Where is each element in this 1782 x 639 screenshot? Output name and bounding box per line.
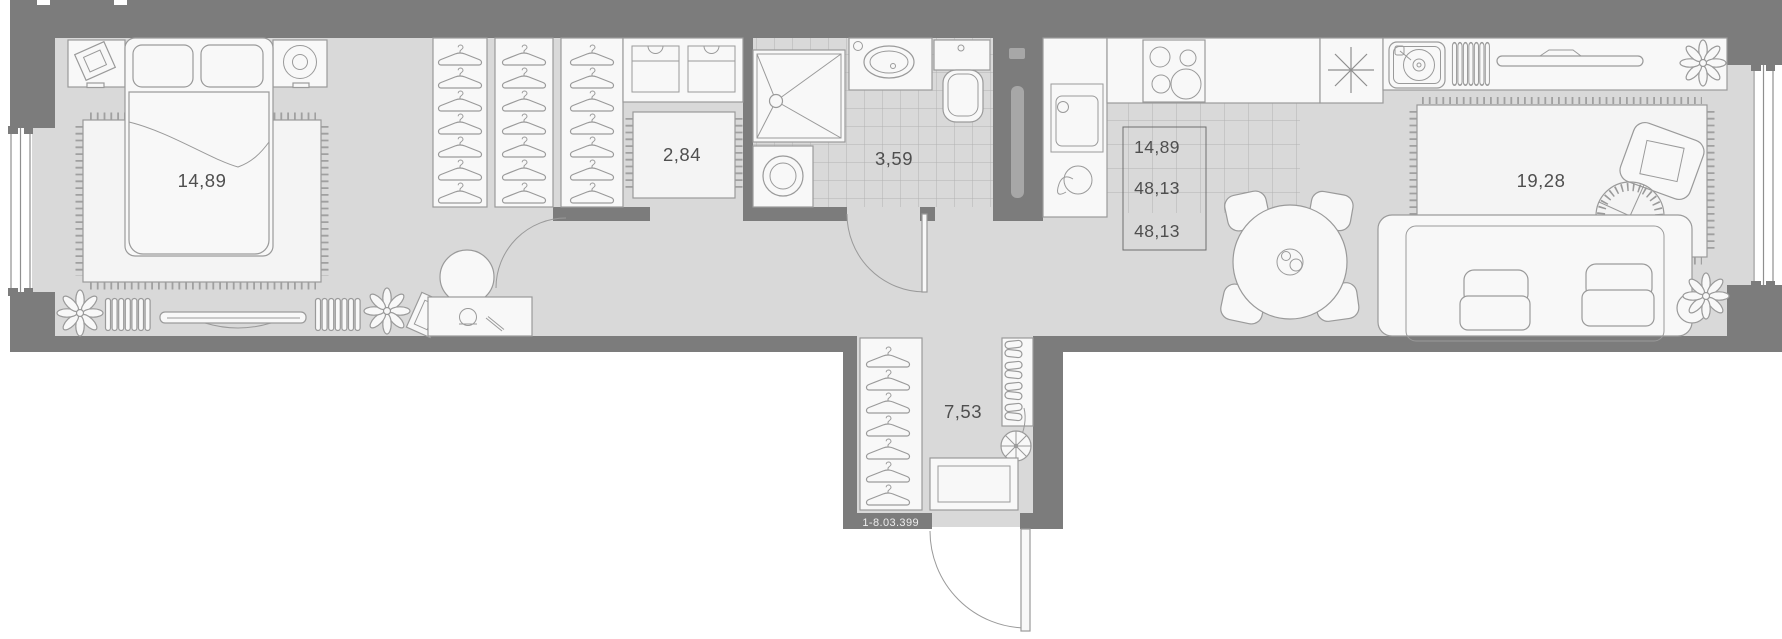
desk [428, 297, 532, 336]
desk-chair [440, 250, 494, 304]
record-player-icon [1389, 42, 1445, 88]
kitchen-counter-top [1107, 38, 1320, 103]
wall-notch [114, 0, 127, 5]
wardrobe-rack [433, 38, 487, 207]
nightstand-right [273, 40, 327, 88]
wall-left-top-cap [10, 38, 55, 128]
ceiling-light-icon [1320, 38, 1383, 103]
wardrobe-rack [495, 38, 553, 207]
wall-notch [37, 0, 50, 5]
hall-area-label: 7,53 [944, 401, 982, 422]
wall-hall-left [843, 336, 857, 513]
door-mat [930, 458, 1018, 510]
wall-bottom-left [10, 336, 857, 352]
hall-coat-rack [860, 338, 922, 510]
plant-icon [364, 288, 410, 334]
bed [125, 38, 273, 256]
sofa [1378, 215, 1692, 341]
plant-icon [57, 290, 103, 336]
kitchen-counter-left [1043, 38, 1107, 217]
washing-machine [753, 146, 813, 207]
radiator-icon [1452, 43, 1489, 86]
bedroom-area-label: 14,89 [178, 170, 227, 191]
area-summary-value: 14,89 [1134, 137, 1180, 157]
wall-hall-right [1033, 336, 1063, 529]
wall-bathroom-bottom [743, 207, 847, 221]
shower [753, 50, 845, 142]
wardrobe-rack [561, 38, 623, 207]
entry-door [930, 529, 1030, 631]
area-summary-value: 48,13 [1134, 178, 1180, 198]
area-summary-value: 48,13 [1134, 221, 1180, 241]
radiator-icon [316, 299, 361, 331]
drawer-unit [623, 38, 743, 102]
unit-number-badge: 1-8.03.399 [862, 517, 919, 529]
sofa-cushion [1460, 296, 1530, 330]
floor-plan: 14,89 [0, 0, 1782, 639]
sofa-cushion [1582, 290, 1654, 326]
dining-set [1219, 189, 1361, 326]
wall-dressing-bathroom [743, 38, 753, 221]
wall-right-top-cap [1727, 38, 1782, 65]
nightstand-left [68, 40, 125, 88]
wall-left-bottom-cap [10, 292, 55, 342]
bathroom-sink [849, 38, 932, 90]
wall-right-bottom-cap [1727, 285, 1782, 352]
shoe-rack [1002, 338, 1033, 426]
wall-entry-jamb [1020, 513, 1033, 529]
radiator-icon [106, 299, 151, 331]
dining-table [1233, 205, 1347, 319]
bathroom-area-label: 3,59 [875, 148, 913, 169]
floor-plan-drawing: 14,89 [0, 0, 1782, 639]
living-area-label: 19,28 [1517, 170, 1566, 191]
plant-icon [1683, 273, 1729, 319]
window-left [8, 126, 33, 296]
wall-top [10, 0, 1782, 38]
living-room: 19,28 [1378, 101, 1729, 342]
plant-icon [1680, 40, 1726, 86]
living-top-band [1383, 38, 1727, 90]
wall-bottom-right [1033, 336, 1782, 352]
dressing-area-label: 2,84 [663, 144, 701, 165]
window-right [1751, 63, 1775, 289]
wall-below-racks [553, 207, 650, 221]
